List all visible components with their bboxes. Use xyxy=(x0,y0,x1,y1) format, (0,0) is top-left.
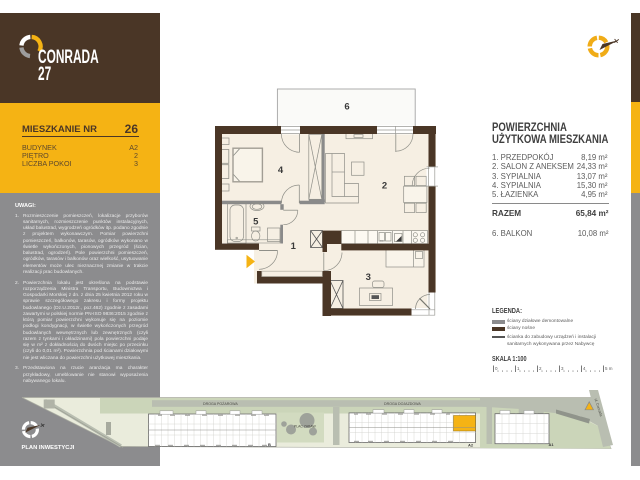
svg-text:DROGA DOJAZDOWA: DROGA DOJAZDOWA xyxy=(384,402,421,406)
svg-text:PLAN INWESTYCJI: PLAN INWESTYCJI xyxy=(22,445,75,451)
svg-text:A1: A1 xyxy=(549,442,555,447)
svg-text:B: B xyxy=(268,442,271,447)
svg-text:A2: A2 xyxy=(468,443,474,448)
svg-text:DROGA POŻAROWA: DROGA POŻAROWA xyxy=(203,401,238,406)
svg-text:PLAC ZABAW: PLAC ZABAW xyxy=(294,425,317,429)
